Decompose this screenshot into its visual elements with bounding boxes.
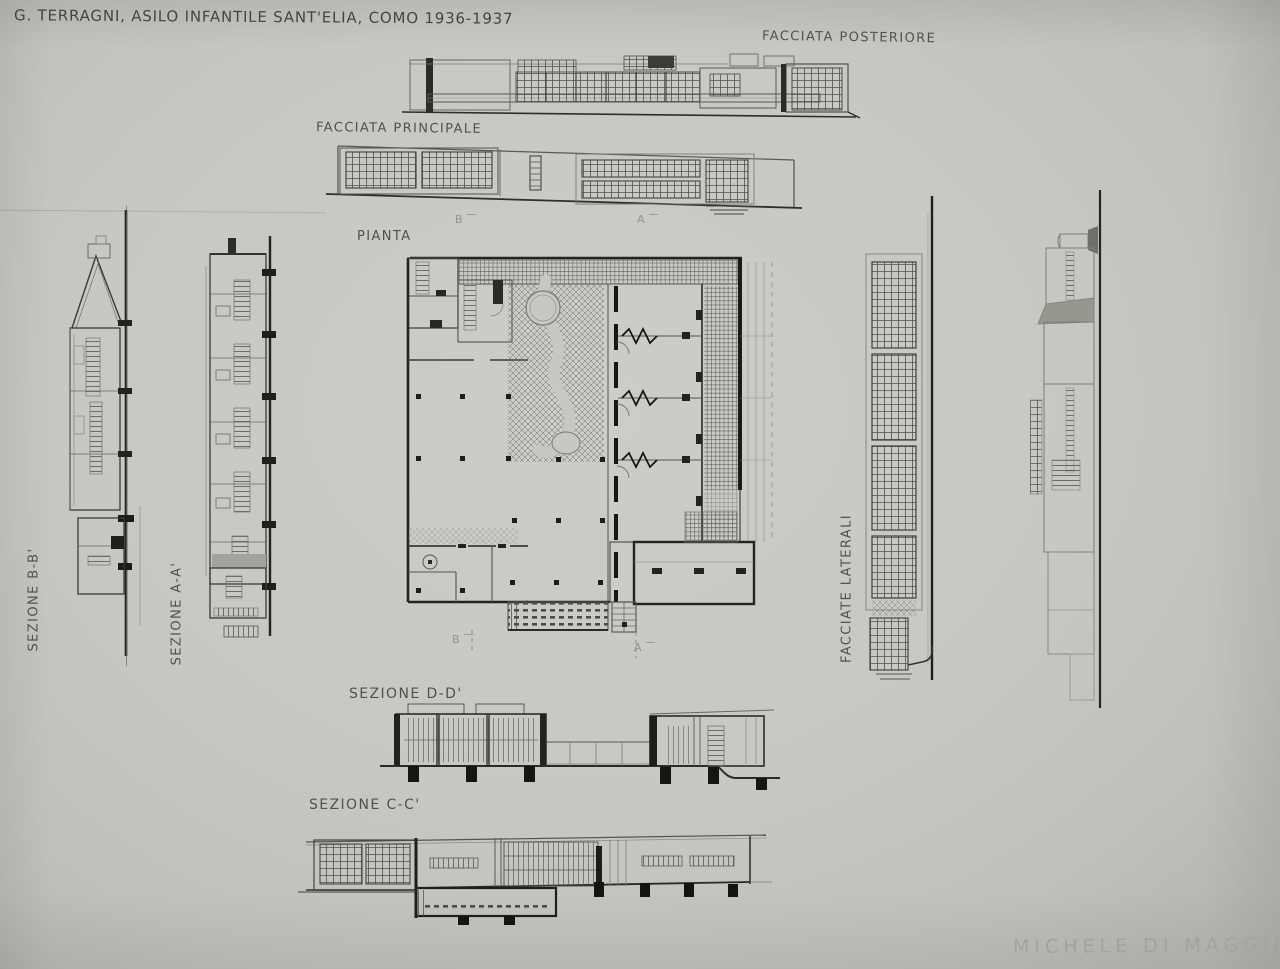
label-sezione-bb: SEZIONE B-B' bbox=[27, 535, 42, 665]
plan-lower-left-rooms bbox=[408, 528, 528, 602]
label-sezione-cc: SEZIONE C-C' bbox=[309, 797, 421, 813]
facciata-principale-drawing bbox=[324, 136, 808, 220]
sketch-sheet: G. TERRAGNI, ASILO INFANTILE SANT'ELIA, … bbox=[0, 0, 1280, 969]
signature: MICHELE DI MAGGIO bbox=[1013, 934, 1280, 958]
plan-courtyard bbox=[508, 280, 604, 462]
facciata-posteriore-drawing bbox=[398, 52, 862, 124]
label-pianta: PIANTA bbox=[357, 229, 412, 244]
construction-line bbox=[0, 210, 326, 214]
label-facciate-laterali: FACCIATE LATERALI bbox=[840, 514, 855, 664]
sezione-cc-drawing bbox=[298, 826, 774, 938]
pianta-drawing bbox=[396, 250, 784, 662]
label-facciata-posteriore: FACCIATA POSTERIORE bbox=[762, 29, 936, 46]
facciate-laterali-drawing-1 bbox=[856, 194, 946, 684]
plan-lower-right-wing bbox=[610, 512, 754, 604]
plan-classroom-wing bbox=[608, 258, 772, 602]
sezione-bb-drawing bbox=[52, 206, 148, 668]
drawing-title: G. TERRAGNI, ASILO INFANTILE SANT'ELIA, … bbox=[14, 6, 514, 27]
facciate-laterali-drawing-2 bbox=[1030, 190, 1114, 710]
plan-entrance-terrace bbox=[472, 602, 636, 658]
label-sezione-aa: SEZIONE A-A' bbox=[170, 549, 185, 679]
sezione-dd-drawing bbox=[378, 700, 782, 794]
sezione-aa-drawing bbox=[198, 236, 294, 638]
